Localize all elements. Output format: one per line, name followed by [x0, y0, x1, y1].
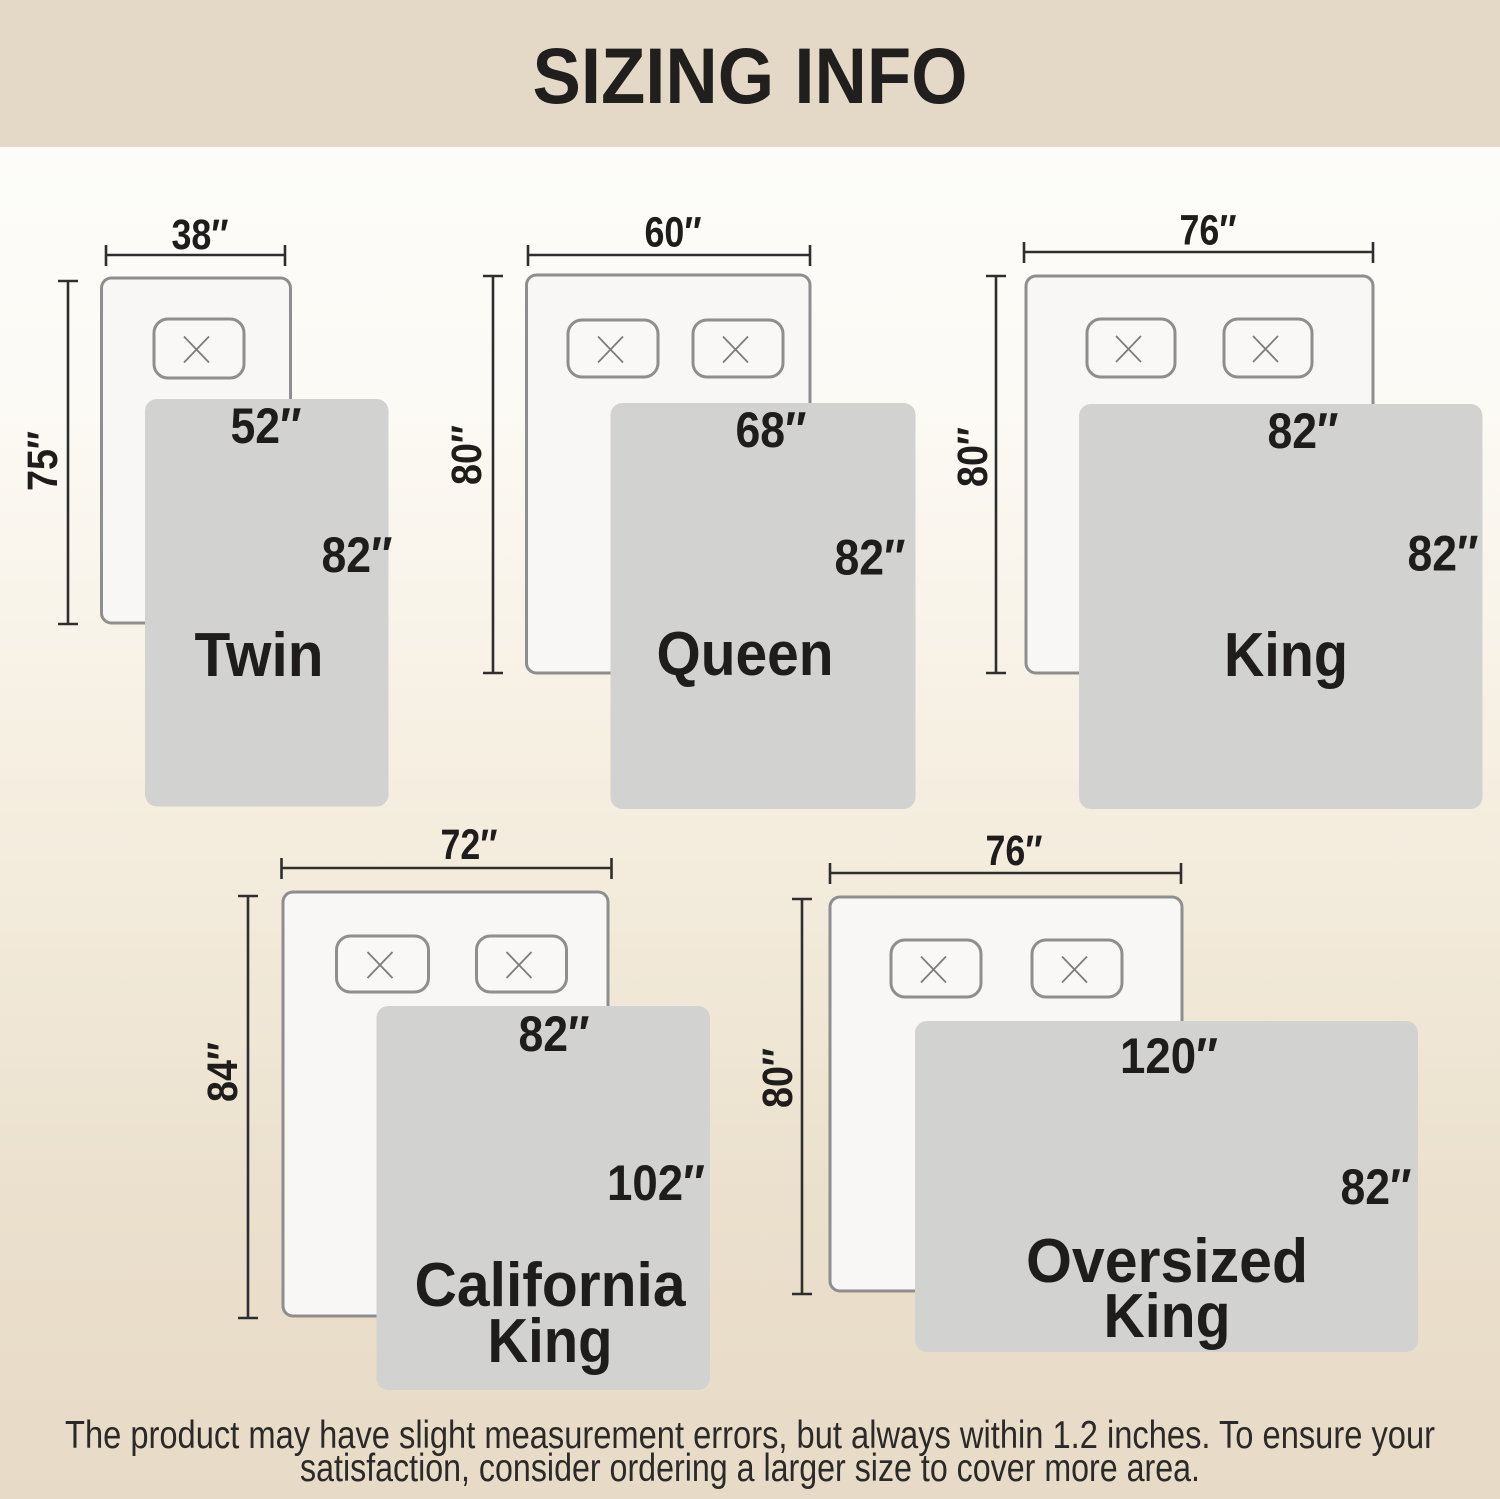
svg-text:80″: 80″ — [754, 1048, 802, 1108]
svg-text:King: King — [1104, 1282, 1231, 1351]
svg-text:102″: 102″ — [607, 1155, 705, 1211]
svg-text:52″: 52″ — [231, 398, 302, 454]
svg-text:82″: 82″ — [1268, 403, 1339, 459]
svg-text:84″: 84″ — [199, 1042, 247, 1102]
svg-text:82″: 82″ — [1341, 1159, 1412, 1215]
svg-text:82″: 82″ — [322, 527, 393, 583]
svg-text:Twin: Twin — [195, 621, 324, 690]
svg-text:80″: 80″ — [443, 425, 491, 485]
svg-text:satisfaction, consider orderin: satisfaction, consider ordering a larger… — [300, 1447, 1200, 1490]
svg-text:King: King — [488, 1307, 613, 1376]
svg-text:76″: 76″ — [986, 827, 1043, 875]
svg-text:82″: 82″ — [835, 530, 906, 586]
svg-text:68″: 68″ — [736, 402, 807, 458]
svg-text:King: King — [1224, 621, 1348, 690]
svg-text:80″: 80″ — [949, 427, 997, 487]
svg-text:75″: 75″ — [19, 431, 67, 491]
svg-text:Queen: Queen — [657, 620, 834, 689]
svg-text:38″: 38″ — [172, 211, 229, 259]
svg-text:120″: 120″ — [1120, 1028, 1218, 1084]
svg-text:72″: 72″ — [441, 821, 498, 869]
svg-text:60″: 60″ — [645, 209, 702, 257]
svg-text:76″: 76″ — [1180, 207, 1237, 255]
svg-text:82″: 82″ — [1408, 526, 1479, 582]
svg-text:82″: 82″ — [519, 1006, 590, 1062]
svg-text:SIZING INFO: SIZING INFO — [533, 31, 968, 120]
